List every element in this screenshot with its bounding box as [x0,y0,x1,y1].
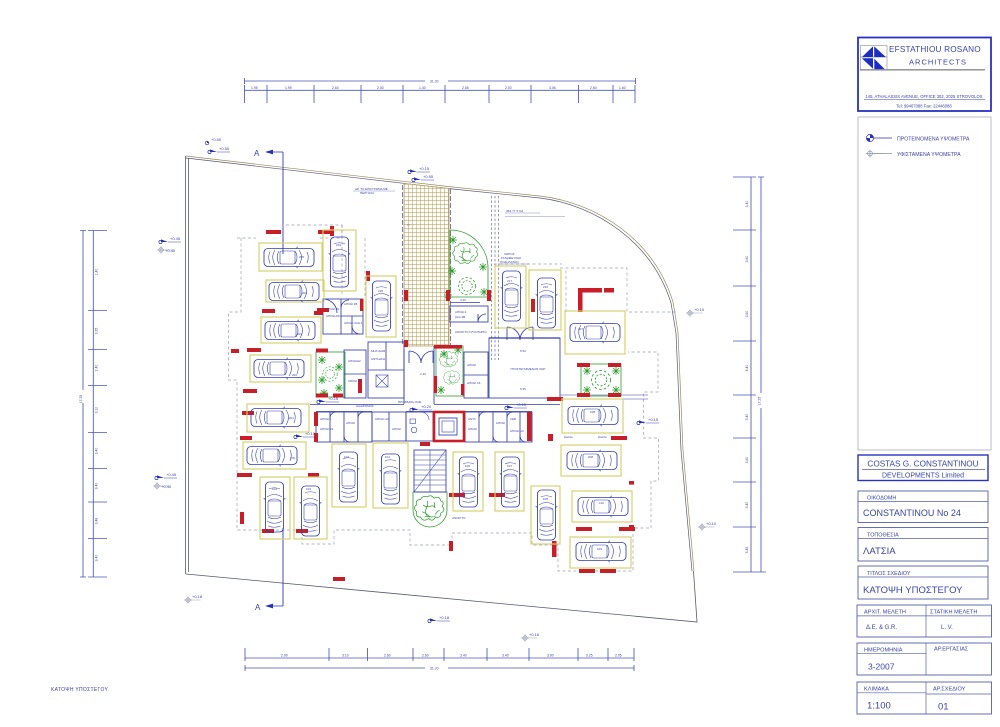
svg-text:216: 216 [543,285,548,289]
svg-text:203: 203 [297,332,302,336]
svg-text:1.60: 1.60 [619,86,626,90]
svg-text:110: 110 [599,501,604,505]
svg-text:5.45: 5.45 [745,547,749,554]
svg-text:ΑΠΟΘ ΥΔ: ΑΠΟΘ ΥΔ [467,381,480,385]
svg-text:ΑΡ.ΕΡΓΑΣΙΑΣ: ΑΡ.ΕΡΓΑΣΙΑΣ [934,647,969,653]
svg-text:1.40: 1.40 [419,86,426,90]
svg-text:3.40: 3.40 [502,654,509,658]
svg-text:ΑΠΟΘ ΗΛ: ΑΠΟΘ ΗΛ [375,417,389,421]
svg-text:+0.16: +0.16 [529,632,540,637]
svg-text:+0.10: +0.10 [694,307,705,312]
svg-text:0.25: 0.25 [586,654,593,658]
svg-text:+0.40: +0.40 [161,484,172,489]
svg-text:ΥΠΟΣΤΕΓΑΣΜΕΝΟΣ ΧΩΡ: ΥΠΟΣΤΕΓΑΣΜΕΝΟΣ ΧΩΡ [510,367,545,371]
svg-text:201: 201 [289,416,294,420]
svg-text:+0.55: +0.55 [423,174,434,179]
svg-text:2.40: 2.40 [377,86,384,90]
svg-text:2.60: 2.60 [590,86,597,90]
svg-text:ΚΛΙΜΑΚΑ: ΚΛΙΜΑΚΑ [864,687,889,693]
svg-text:+0.15: +0.15 [516,402,527,407]
svg-text:ΑΠΟΘ 09: ΑΠΟΘ 09 [320,427,333,431]
svg-text:ΑΠΟΘ ΗΛΔ.1: ΑΠΟΘ ΗΛΔ.1 [344,321,363,325]
svg-text:205: 205 [299,255,304,259]
svg-text:ΤΙΤΛΟΣ ΣΧΕΔΙΟΥ: ΤΙΤΛΟΣ ΣΧΕΔΙΟΥ [867,571,911,577]
svg-text:105: 105 [290,456,295,460]
svg-text:2.90: 2.90 [281,654,288,658]
svg-text:Tel: 99467088 Fax: 224460: Tel: 99467088 Fax: 22446088 [896,104,952,109]
svg-text:ΑΠΟΘ: ΑΠΟΘ [467,363,477,367]
svg-text:17.25: 17.25 [758,397,762,406]
svg-text:107: 107 [507,464,512,468]
svg-text:2.00: 2.00 [505,86,512,90]
svg-text:5.50: 5.50 [520,349,526,353]
svg-text:3.40: 3.40 [460,298,466,302]
svg-text:ΠΕΡΓΟΛΑ: ΠΕΡΓΟΛΑ [360,191,374,195]
svg-text:1.99: 1.99 [285,86,292,90]
svg-text:109: 109 [597,547,602,551]
svg-text:101: 101 [385,455,390,459]
svg-text:ΛΑΤΣΙΑ: ΛΑΤΣΙΑ [863,546,896,557]
svg-text:DEVELOPMENTS Limited: DEVELOPMENTS Limited [882,473,964,480]
svg-text:105: 105 [543,497,548,501]
svg-text:L. V.: L. V. [941,625,953,631]
svg-text:3.10: 3.10 [95,407,99,414]
svg-text:3.25: 3.25 [95,328,99,335]
svg-text:31.20: 31.20 [430,80,439,84]
svg-text:+0.15: +0.15 [419,166,430,171]
svg-text:ΑΠΟΘ.2: ΑΠΟΘ.2 [455,310,467,314]
svg-text:EFSTATHIOU ROSANO: EFSTATHIOU ROSANO [889,45,981,54]
svg-text:CONSTANTINOU No 24: CONSTANTINOU No 24 [863,508,961,518]
svg-text:145, ATHALASSIS AVENUE, OFFI: 145, ATHALASSIS AVENUE, OFFICE 302, 2025… [865,94,982,99]
svg-text:+0.40: +0.40 [165,248,176,253]
svg-text:35Δ ΥΓ 5 ΟΔ: 35Δ ΥΓ 5 ΟΔ [506,209,523,213]
svg-text:ΑΝΟΙΚΤΟ ΠΛΥΝΤΗΡΙΟ: ΑΝΟΙΚΤΟ ΠΛΥΝΤΗΡΙΟ [455,330,487,334]
svg-text:2.60: 2.60 [384,654,391,658]
svg-text:5.35: 5.35 [520,387,526,391]
svg-text:204: 204 [302,291,307,295]
svg-text:ΑΠΟΘ: ΑΠΟΘ [392,427,402,431]
svg-text:ΑΠΟΘ 1: ΑΠΟΘ 1 [320,417,332,421]
svg-text:3.40: 3.40 [745,201,749,208]
svg-text:+0.18: +0.18 [439,615,450,620]
svg-text:+0.55: +0.55 [219,146,230,151]
svg-text:+0.15: +0.15 [648,417,659,422]
svg-text:1:100: 1:100 [867,701,891,712]
svg-text:218: 218 [378,289,383,293]
svg-text:+0.15: +0.15 [305,431,316,436]
svg-text:17.25: 17.25 [79,395,83,404]
svg-text:208: 208 [588,455,593,459]
svg-text:3.40: 3.40 [745,502,749,509]
svg-text:ΗΜΕΡΟΜΗΝΙΑ: ΗΜΕΡΟΜΗΝΙΑ [864,648,903,654]
svg-text:ΟΙΚΟΔΟΜΗ: ΟΙΚΟΔΟΜΗ [867,496,896,502]
svg-text:ΑΠΟΘ 3Α: ΑΠΟΘ 3Α [348,379,361,383]
svg-text:βασιλε: βασιλε [564,435,573,439]
svg-text:106: 106 [465,464,470,468]
svg-text:31.20: 31.20 [430,667,439,671]
svg-text:ΠΡΟΣΒΑΣΗ ΣΟΕ: ΠΡΟΣΒΑΣΗ ΣΟΕ [398,400,421,404]
svg-text:ARCHITECTS: ARCHITECTS [909,58,967,67]
svg-text:2.65: 2.65 [462,86,469,90]
svg-text:ΑΝΟΙΚΤΟ: ΑΝΟΙΚΤΟ [452,516,466,520]
svg-text:ΑΠΟΘ: ΑΠΟΘ [496,421,506,425]
svg-text:3-2007: 3-2007 [868,662,895,672]
svg-text:ΣΤΑΤΙΚΗ ΜΕΛΕΤΗ: ΣΤΑΤΙΚΗ ΜΕΛΕΤΗ [930,610,977,616]
svg-text:ΚΑΤΟΨΗ ΥΠΟΣΤΕΓΟΥ: ΚΑΤΟΨΗ ΥΠΟΣΤΕΓΟΥ [51,687,109,693]
svg-text:3.06: 3.06 [549,86,556,90]
svg-text:ΑΠΟΘ.09/1: ΑΠΟΘ.09/1 [326,314,342,318]
svg-text:103: 103 [306,487,311,491]
svg-text:2.40: 2.40 [95,365,99,372]
svg-text:ΥΦΙΣΤΑΜΕΝΑ ΥΨΟΜΕΤΡΑ: ΥΦΙΣΤΑΜΕΝΑ ΥΨΟΜΕΤΡΑ [897,152,961,158]
svg-text:3.40: 3.40 [95,555,99,562]
svg-text:01: 01 [938,702,949,713]
svg-text:2.64: 2.64 [332,86,339,90]
svg-text:A: A [254,149,260,158]
svg-text:ΠΟΔΗΛΑΤΩΝ: ΠΟΔΗΛΑΤΩΝ [500,260,519,264]
svg-text:ΔΙΑΔΡΟΜΟΣ: ΔΙΑΔΡΟΜΟΣ [356,404,374,408]
svg-text:207: 207 [578,327,583,331]
svg-text:ΑΠΟΘ: ΑΠΟΘ [346,421,356,425]
svg-text:ΠΡΟΤΕΙΝΟΜΕΝΑ ΥΨΟΜΕΤΡΑ: ΠΡΟΤΕΙΝΟΜΕΝΑ ΥΨΟΜΕΤΡΑ [897,137,970,143]
svg-text:ΛΕΒ: ΛΕΒ [510,417,516,421]
svg-text:+0.15: +0.15 [328,396,339,401]
svg-text:ΑΠΟΘΗ2: ΑΠΟΘΗ2 [348,359,361,363]
svg-text:2.40: 2.40 [420,372,426,376]
svg-text:219: 219 [336,243,341,247]
svg-text:ΑΡ.ΣΧΕΔΙΟΥ: ΑΡ.ΣΧΕΔΙΟΥ [933,687,966,693]
svg-text:108: 108 [590,410,595,414]
svg-text:ΑΠΟΘ ΗΛ: ΑΠΟΘ ΗΛ [510,429,524,433]
svg-text:ΑΡΧΙΤ. ΜΕΛΕΤΗ: ΑΡΧΙΤ. ΜΕΛΕΤΗ [864,610,906,616]
svg-text:ΚΑΤΟΨΗ ΥΠΟΣΤΕΓΟΥ: ΚΑΤΟΨΗ ΥΠΟΣΤΕΓΟΥ [863,585,963,596]
svg-text:ΜΗΧ ΔΩΜ: ΜΗΧ ΔΩΜ [371,349,386,353]
svg-text:217: 217 [507,279,512,283]
svg-text:3.60: 3.60 [745,256,749,263]
svg-text:Δ.Ε. & G.R.: Δ.Ε. & G.R. [866,625,897,631]
svg-text:ΑΠΟΘ.06: ΑΠΟΘ.06 [326,307,339,311]
svg-text:+0.45: +0.45 [166,472,177,477]
svg-text:3.60: 3.60 [745,311,749,318]
svg-text:1.40: 1.40 [95,269,99,276]
svg-text:+0.10: +0.10 [706,521,717,526]
svg-text:3.40: 3.40 [460,654,467,658]
svg-text:104: 104 [272,487,277,491]
svg-text:102: 102 [344,455,349,459]
svg-text:2.05: 2.05 [615,654,622,658]
svg-text:A: A [255,603,261,612]
svg-text:3.90: 3.90 [547,654,554,658]
svg-text:3.40: 3.40 [745,414,749,421]
svg-text:βιλα 3Β: βιλα 3Β [455,315,465,319]
svg-text:4.40: 4.40 [745,365,749,372]
svg-text:3.48: 3.48 [95,518,99,525]
svg-text:3.40: 3.40 [95,483,99,490]
svg-text:3.40: 3.40 [95,448,99,455]
svg-text:+0.18: +0.18 [192,594,203,599]
svg-text:ΤΟΠΟΘΕΣΙΑ: ΤΟΠΟΘΕΣΙΑ [867,533,899,539]
svg-text:+0.50: +0.50 [211,137,222,142]
svg-text:ΑΝΤΛΗΣΗ: ΑΝΤΛΗΣΗ [371,357,385,361]
svg-text:ΑΠΟΘ: ΑΠΟΘ [468,427,478,431]
svg-text:3.60: 3.60 [745,457,749,464]
svg-text:2.60: 2.60 [422,654,429,658]
svg-text:202: 202 [292,373,297,377]
svg-text:+0.20: +0.20 [421,404,432,409]
svg-text:3.10: 3.10 [342,654,349,658]
svg-text:COSTAS G. CONSTANTINOU: COSTAS G. CONSTANTINOU [867,460,978,469]
svg-text:ΑΠΟΘ 2Β: ΑΠΟΘ 2Β [344,302,357,306]
svg-text:ΑΝΤΛ: ΑΝΤΛ [468,417,476,421]
svg-text:βασιλε: βασιλε [598,435,607,439]
svg-text:+0.45: +0.45 [170,236,181,241]
svg-text:1.95: 1.95 [251,86,258,90]
